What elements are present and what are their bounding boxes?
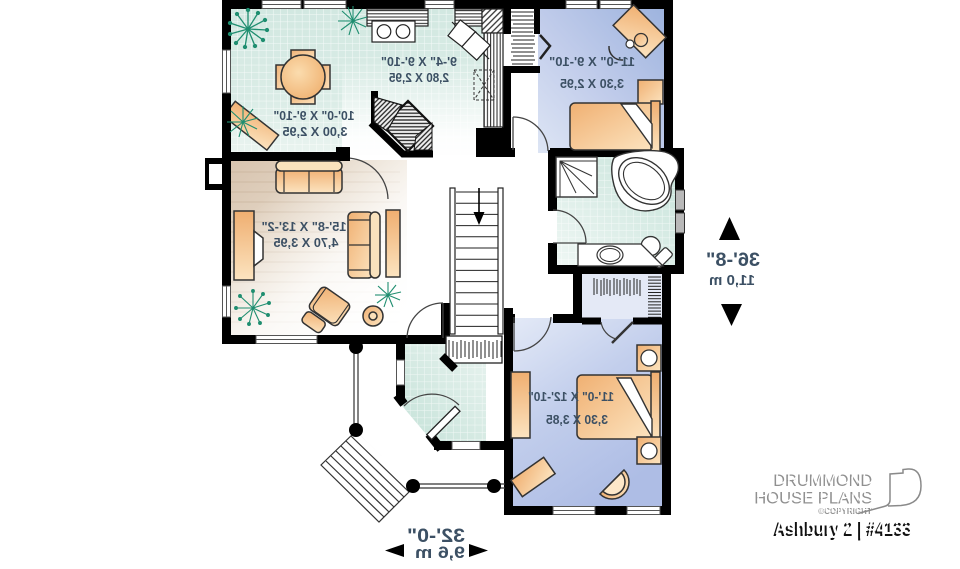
svg-text:36'-8": 36'-8": [706, 250, 760, 271]
svg-text:11'-0" X 9'-10": 11'-0" X 9'-10": [549, 55, 635, 69]
svg-text:2,80 X 2,95: 2,80 X 2,95: [389, 71, 449, 85]
svg-text:3,30 X 2,95: 3,30 X 2,95: [560, 77, 624, 91]
svg-text:9'-4" X 9'-10": 9'-4" X 9'-10": [381, 55, 457, 69]
svg-text:DRUMMOND: DRUMMOND: [775, 470, 874, 488]
svg-text:4,70 X 3,95: 4,70 X 3,95: [273, 236, 338, 250]
svg-text:11,0 m: 11,0 m: [709, 272, 755, 289]
svg-text:9,6 m: 9,6 m: [415, 543, 465, 562]
svg-text:11'-0" X 12'-10": 11'-0" X 12'-10": [528, 390, 614, 404]
svg-text:15'-8" X 13'-2": 15'-8" X 13'-2": [261, 220, 346, 234]
svg-text:©COPYRIGHT: ©COPYRIGHT: [820, 506, 874, 515]
svg-text:Ashbury 2 | #4133: Ashbury 2 | #4133: [775, 518, 913, 539]
svg-text:10'-0" X 9'-10": 10'-0" X 9'-10": [273, 109, 354, 123]
svg-text:3,00 X 2,95: 3,00 X 2,95: [282, 125, 347, 139]
svg-text:HOUSE PLANS: HOUSE PLANS: [756, 488, 874, 506]
svg-text:3,30 X 3,85: 3,30 X 3,85: [546, 413, 608, 427]
